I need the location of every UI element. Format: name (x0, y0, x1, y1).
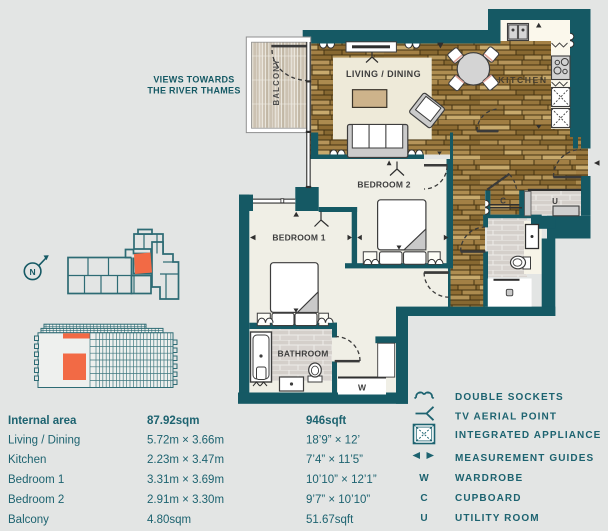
svg-text:LIVING / DINING: LIVING / DINING (346, 69, 421, 79)
svg-text:CUPBOARD: CUPBOARD (455, 493, 522, 504)
svg-text:2.23m × 3.47m: 2.23m × 3.47m (147, 454, 224, 466)
svg-text:87.92sqm: 87.92sqm (147, 415, 199, 427)
svg-text:VIEWS TOWARDS: VIEWS TOWARDS (153, 75, 234, 85)
svg-text:UTILITY ROOM: UTILITY ROOM (455, 513, 540, 524)
svg-text:18’9” × 12’: 18’9” × 12’ (306, 435, 360, 447)
svg-text:2.91m × 3.30m: 2.91m × 3.30m (147, 494, 224, 506)
svg-text:DOUBLE SOCKETS: DOUBLE SOCKETS (455, 392, 564, 403)
svg-text:TV AERIAL POINT: TV AERIAL POINT (455, 412, 557, 423)
svg-text:7’4” × 11’5”: 7’4” × 11’5” (306, 454, 363, 466)
svg-text:THE RIVER THAMES: THE RIVER THAMES (147, 86, 240, 96)
svg-text:MEASUREMENT GUIDES: MEASUREMENT GUIDES (455, 453, 594, 464)
svg-text:5.72m × 3.66m: 5.72m × 3.66m (147, 435, 224, 447)
svg-text:Balcony: Balcony (8, 514, 49, 526)
svg-text:BEDROOM 1: BEDROOM 1 (272, 233, 325, 243)
svg-text:INTEGRATED APPLIANCE: INTEGRATED APPLIANCE (455, 430, 601, 441)
svg-text:Kitchen: Kitchen (8, 454, 46, 466)
svg-text:Internal area: Internal area (8, 415, 77, 427)
svg-text:C: C (420, 493, 427, 504)
svg-text:N: N (30, 267, 36, 277)
svg-text:4.80sqm: 4.80sqm (147, 514, 191, 526)
svg-text:Living / Dining: Living / Dining (8, 435, 80, 447)
svg-text:BATHROOM: BATHROOM (277, 348, 328, 358)
svg-text:10’10” × 12’1”: 10’10” × 12’1” (306, 474, 377, 486)
svg-text:W: W (419, 473, 429, 484)
svg-text:U: U (420, 513, 427, 524)
svg-text:946sqft: 946sqft (306, 415, 346, 427)
svg-text:9’7” × 10’10”: 9’7” × 10’10” (306, 494, 370, 506)
svg-text:KITCHEN: KITCHEN (498, 75, 547, 85)
svg-text:W: W (358, 383, 367, 393)
svg-text:Bedroom 2: Bedroom 2 (8, 494, 64, 506)
svg-text:Bedroom 1: Bedroom 1 (8, 474, 64, 486)
svg-text:WARDROBE: WARDROBE (455, 473, 523, 484)
svg-text:BEDROOM 2: BEDROOM 2 (357, 180, 410, 190)
svg-text:51.67sqft: 51.67sqft (306, 514, 354, 526)
svg-text:3.31m × 3.69m: 3.31m × 3.69m (147, 474, 224, 486)
svg-text:U: U (552, 197, 558, 206)
